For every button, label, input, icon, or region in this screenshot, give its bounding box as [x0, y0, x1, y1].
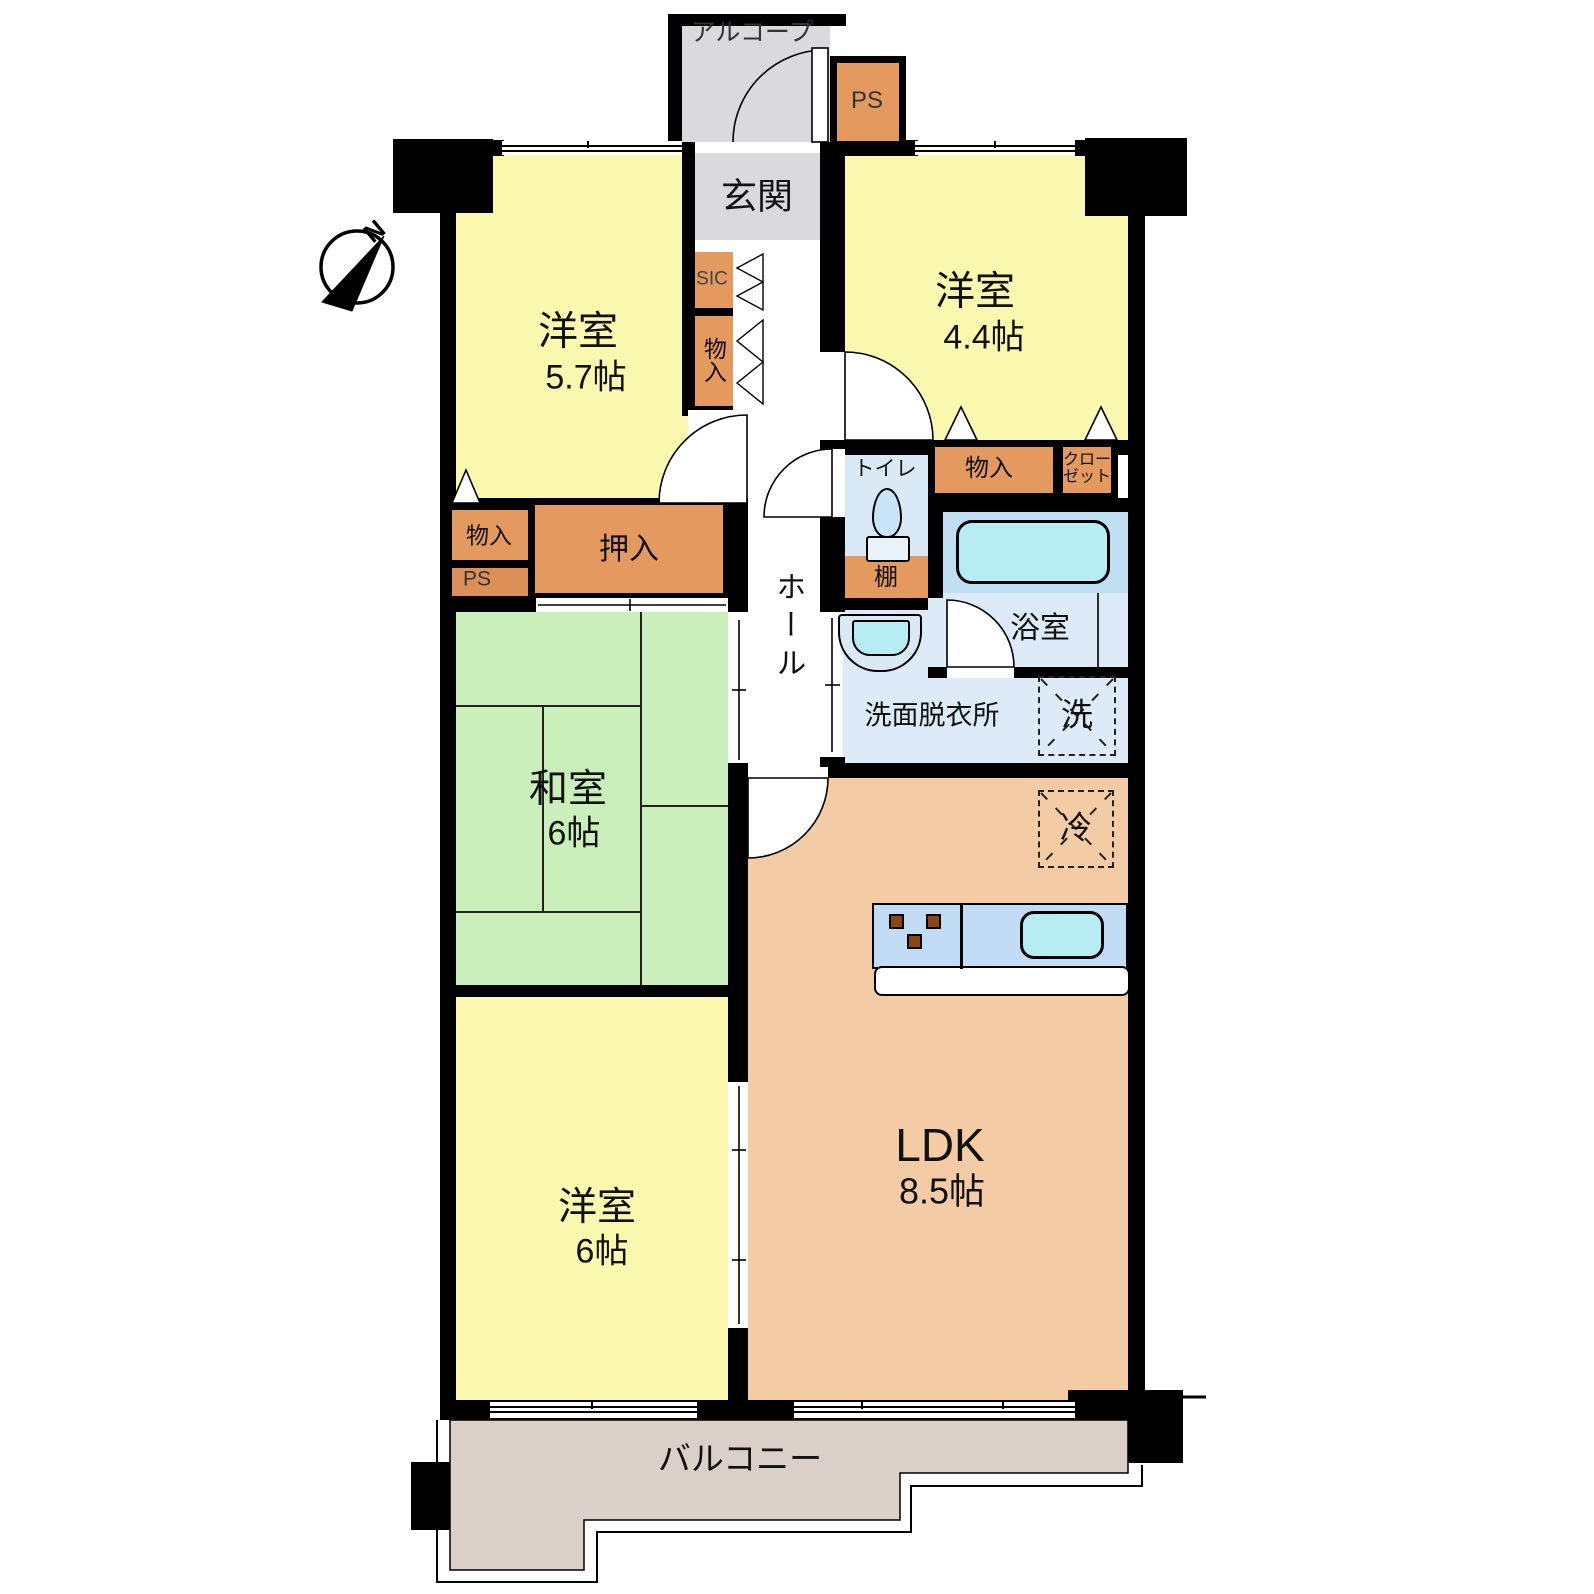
west-room-44-size: 4.4帖: [943, 320, 1024, 357]
wall: [1128, 216, 1145, 1400]
wall: [728, 997, 748, 1082]
floor-plan: N アルコープ PS 玄関 SIC 物入 洋室 5.7帖 洋室 4.4帖 トイレ…: [0, 0, 1594, 1594]
bifold-door-icon: [737, 254, 763, 404]
sliding-door: [536, 598, 728, 612]
west-room-6-size: 6帖: [576, 1234, 629, 1271]
wall: [928, 498, 1145, 512]
wall: [728, 498, 748, 612]
wall: [411, 1462, 479, 1530]
west-room-44-label: 洋室: [935, 270, 1015, 313]
shelf-label: 棚: [874, 565, 898, 591]
wall: [682, 142, 695, 416]
wall: [928, 667, 947, 678]
ps-left-label: PS: [463, 569, 491, 592]
closet-wide-label: クローゼット: [1058, 452, 1116, 487]
fridge-label: 冷: [1060, 811, 1092, 846]
west-room-57-size: 5.7帖: [545, 360, 626, 397]
bathtub: [956, 520, 1110, 584]
door-leaf: [832, 449, 845, 517]
washroom-label: 洗面脱衣所: [865, 701, 1000, 730]
kitchen-counter-divider: [960, 903, 963, 969]
wall: [668, 14, 682, 155]
wall: [820, 142, 845, 240]
washbasin-bowl: [852, 620, 910, 656]
door-leaf: [748, 767, 828, 778]
ldk-room: [748, 778, 1128, 1400]
kitchen-counter-front: [874, 966, 1130, 996]
kitchen-sink: [1020, 911, 1104, 959]
hall-closet-label: 物入: [701, 337, 726, 383]
window: [502, 141, 682, 155]
compass-north-label: N: [357, 214, 391, 249]
sliding-door: [730, 1082, 748, 1328]
window: [794, 1402, 931, 1418]
sliding-door: [731, 617, 748, 763]
door-leaf: [832, 352, 845, 440]
stove-burner: [907, 934, 922, 949]
wall: [440, 213, 456, 1420]
wall: [1068, 1390, 1183, 1463]
wall: [820, 763, 1145, 778]
north-compass-icon: N: [321, 214, 393, 311]
window: [931, 1402, 1075, 1418]
wall: [820, 240, 845, 352]
wall: [728, 598, 748, 612]
stove-burner: [889, 914, 904, 929]
door-opening: [688, 410, 750, 498]
west-room-57-label: 洋室: [538, 310, 618, 353]
ldk-size: 8.5帖: [899, 1173, 985, 1212]
sic-label: SIC: [696, 270, 728, 291]
wall: [833, 598, 928, 610]
wall: [728, 763, 748, 997]
balcony-label: バルコニー: [658, 1441, 822, 1477]
toilet-label: トイレ: [854, 459, 917, 482]
japanese-room-size: 6帖: [548, 816, 601, 853]
entrance-label: 玄関: [721, 178, 793, 217]
ps-top-label: PS: [851, 88, 883, 114]
wall: [440, 985, 748, 997]
wall: [1085, 138, 1187, 216]
oshiire-label: 押入: [599, 534, 659, 566]
wall: [688, 308, 733, 316]
japanese-room-label: 和室: [529, 769, 607, 811]
window: [490, 1402, 697, 1418]
entrance-step: [695, 240, 820, 252]
window: [915, 141, 1075, 155]
bathroom-label: 浴室: [1010, 613, 1070, 645]
wall: [456, 140, 504, 156]
door-arc: [764, 449, 832, 517]
ldk-label: LDK: [895, 1121, 984, 1171]
west-room-6-label: 洋室: [558, 1187, 636, 1229]
left-closet-label: 物入: [466, 524, 512, 549]
hall-label: ホール: [771, 571, 803, 685]
closet-44-label: 物入: [965, 456, 1013, 482]
toilet-tank: [866, 536, 910, 562]
washer-label: 洗: [1061, 698, 1093, 733]
stove-burner: [926, 914, 941, 929]
alcove-label: アルコープ: [691, 20, 814, 47]
